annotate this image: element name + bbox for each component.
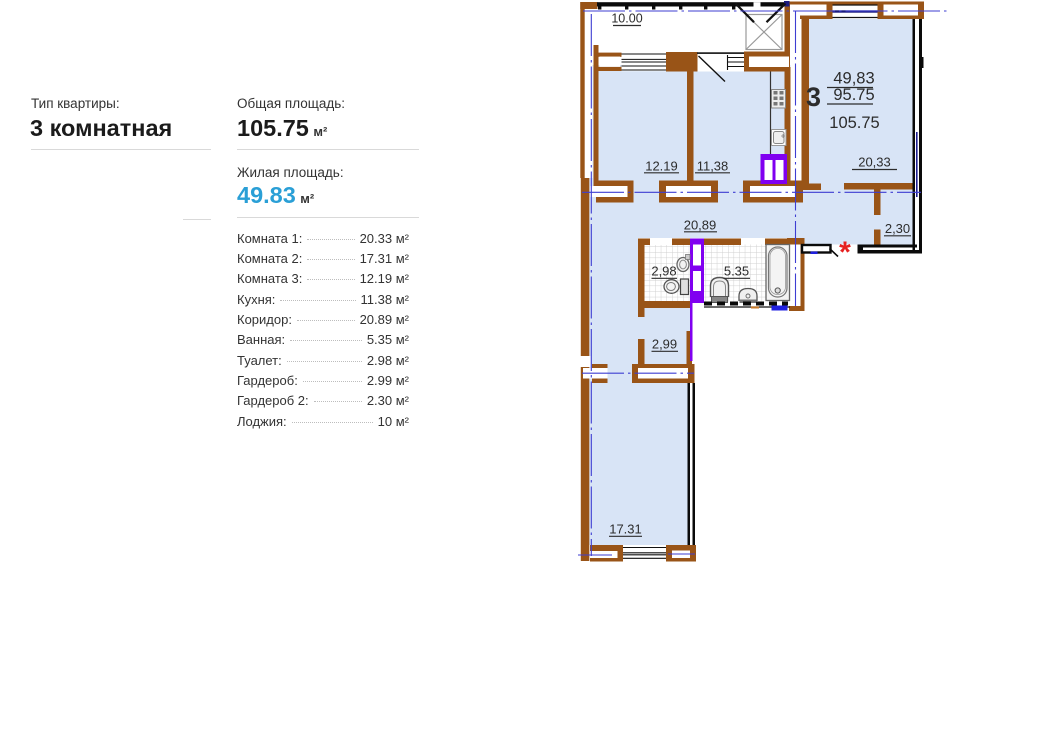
svg-text:20,89: 20,89 [684, 218, 717, 233]
svg-text:95.75: 95.75 [833, 86, 874, 104]
svg-text:10.00: 10.00 [611, 12, 642, 26]
svg-text:105.75: 105.75 [829, 114, 879, 132]
svg-text:*: * [839, 236, 851, 269]
svg-text:11,38: 11,38 [697, 159, 729, 174]
svg-text:20,33: 20,33 [858, 155, 891, 170]
svg-text:2,98: 2,98 [651, 264, 676, 279]
svg-text:49,83: 49,83 [833, 70, 874, 88]
svg-text:5.35: 5.35 [724, 264, 749, 279]
svg-text:12.19: 12.19 [645, 159, 678, 174]
svg-text:17.31: 17.31 [609, 522, 642, 537]
svg-text:2,30: 2,30 [885, 221, 910, 236]
svg-text:3: 3 [806, 82, 821, 112]
svg-text:2,99: 2,99 [652, 337, 677, 352]
